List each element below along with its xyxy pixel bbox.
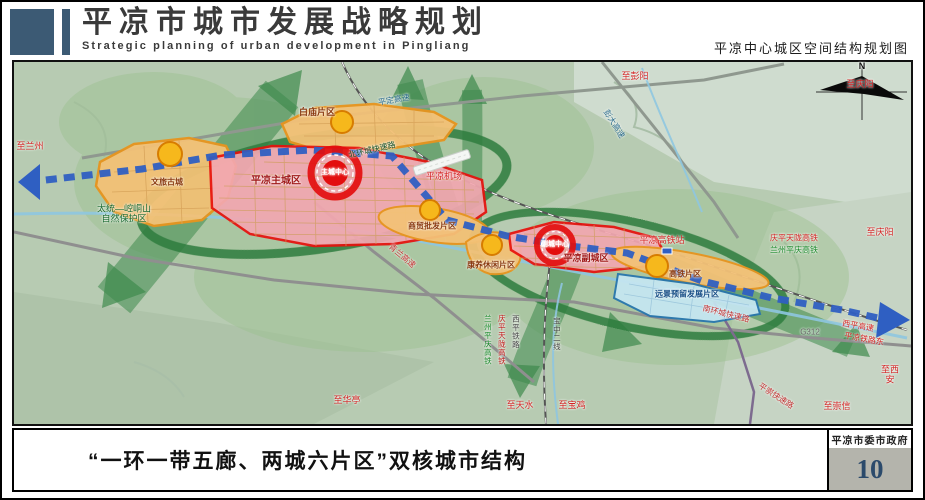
map-label-to-chongxin: 至崇信 bbox=[823, 401, 850, 411]
map-label-compass-n: N bbox=[859, 61, 866, 71]
title-block: 平凉市城市发展战略规划 Strategic planning of urban … bbox=[82, 6, 489, 53]
map-label-pingliang-airport: 平凉机场 bbox=[426, 171, 462, 181]
map-label-to-tianshui: 至天水 bbox=[506, 400, 533, 410]
footer: “一环一带五廊、两城六片区”双核城市结构 平凉市委市政府 10 bbox=[12, 428, 913, 492]
page-title-en: Strategic planning of urban development … bbox=[82, 40, 489, 53]
map-label-pengda-expressway: 彭大高速 bbox=[602, 108, 627, 140]
map-label-pingliang-railway-east: 平凉铁路东 bbox=[844, 331, 885, 347]
map-label-to-baoji: 至宝鸡 bbox=[558, 400, 585, 410]
page-number: 10 bbox=[829, 448, 911, 490]
map-label-to-pengyang: 至彭阳 bbox=[621, 71, 648, 81]
map-label-north-ring-road: 北环城快速路 bbox=[348, 140, 397, 160]
caption: “一环一带五廊、两城六片区”双核城市结构 bbox=[88, 445, 527, 475]
map-label-qingping-tianlong-hsr: 庆平天陇高铁 bbox=[770, 233, 818, 242]
map-label-nature-reserve: 太统—崆峒山 自然保护区 bbox=[97, 204, 151, 225]
map-panel: 至兰州太统—崆峒山 自然保护区文旅古城白庙片区平定高速北环城快速路平凉机场平凉主… bbox=[12, 60, 913, 426]
map-label-sub-city-center: 副城中心 bbox=[541, 241, 569, 249]
credit-box: 平凉市委市政府 10 bbox=[827, 430, 911, 490]
map-label-zone-leisure: 康养休闲片区 bbox=[467, 260, 515, 269]
map-label-baozhong-line2-v: 宝中二线 bbox=[552, 317, 561, 351]
map-label-xiping-railway-v: 西平铁路 bbox=[511, 315, 520, 349]
logo-mark bbox=[10, 9, 54, 55]
map-label-pingchong-expressway: 平崇快速路 bbox=[757, 381, 796, 410]
credit: 平凉市委市政府 bbox=[829, 430, 911, 448]
map-label-qinglan-expressway: 青兰高速 bbox=[387, 242, 417, 270]
map-label-to-qingyang-top: 至庆阳 bbox=[846, 79, 873, 89]
map-label-zone-sub-city: 平凉副城区 bbox=[563, 253, 608, 263]
map-label-g312: G312 bbox=[800, 327, 820, 336]
map-label-zone-baimiao: 白庙片区 bbox=[299, 107, 335, 117]
map-label-qingping-tianlong-hsr-v: 庆平天陇高铁 bbox=[497, 315, 506, 366]
map-label-to-qingyang: 至庆阳 bbox=[866, 227, 893, 237]
map-label-zone-reserved: 远景预留发展片区 bbox=[655, 289, 719, 298]
map-label-to-lanzhou: 至兰州 bbox=[16, 141, 43, 151]
page: 平凉市城市发展战略规划 Strategic planning of urban … bbox=[0, 0, 925, 500]
map-label-hsr-station: 平凉高铁站 bbox=[639, 235, 684, 245]
map-subtitle: 平凉中心城区空间结构规划图 bbox=[714, 38, 909, 57]
map-labels: 至兰州太统—崆峒山 自然保护区文旅古城白庙片区平定高速北环城快速路平凉机场平凉主… bbox=[14, 62, 911, 424]
map-label-zone-trade: 商贸批发片区 bbox=[408, 221, 456, 230]
map-label-pingding-expressway: 平定高速 bbox=[377, 93, 410, 108]
map-label-xiping-expressway: 西平高速 bbox=[841, 319, 874, 334]
page-title: 平凉市城市发展战略规划 bbox=[82, 6, 489, 40]
map-label-zone-wenlu-gucheng: 文旅古城 bbox=[151, 177, 183, 186]
map-label-to-huating: 至华亭 bbox=[333, 395, 360, 405]
map-label-lanzhou-pingqing-hsr-v: 兰州平庆高铁 bbox=[483, 315, 492, 366]
map-label-south-ring-road: 南环城快速路 bbox=[702, 304, 751, 325]
map-label-lanzhou-pingqing-hsr: 兰州平庆高铁 bbox=[770, 245, 818, 254]
map-label-zone-hsr: 高铁片区 bbox=[669, 269, 701, 278]
map-label-main-city-center: 主城中心 bbox=[321, 169, 349, 177]
map-label-zone-main-city: 平凉主城区 bbox=[251, 175, 301, 187]
map-label-to-xian: 至西安 bbox=[880, 365, 901, 386]
logo-bar bbox=[62, 9, 70, 55]
header: 平凉市城市发展战略规划 Strategic planning of urban … bbox=[2, 2, 923, 60]
